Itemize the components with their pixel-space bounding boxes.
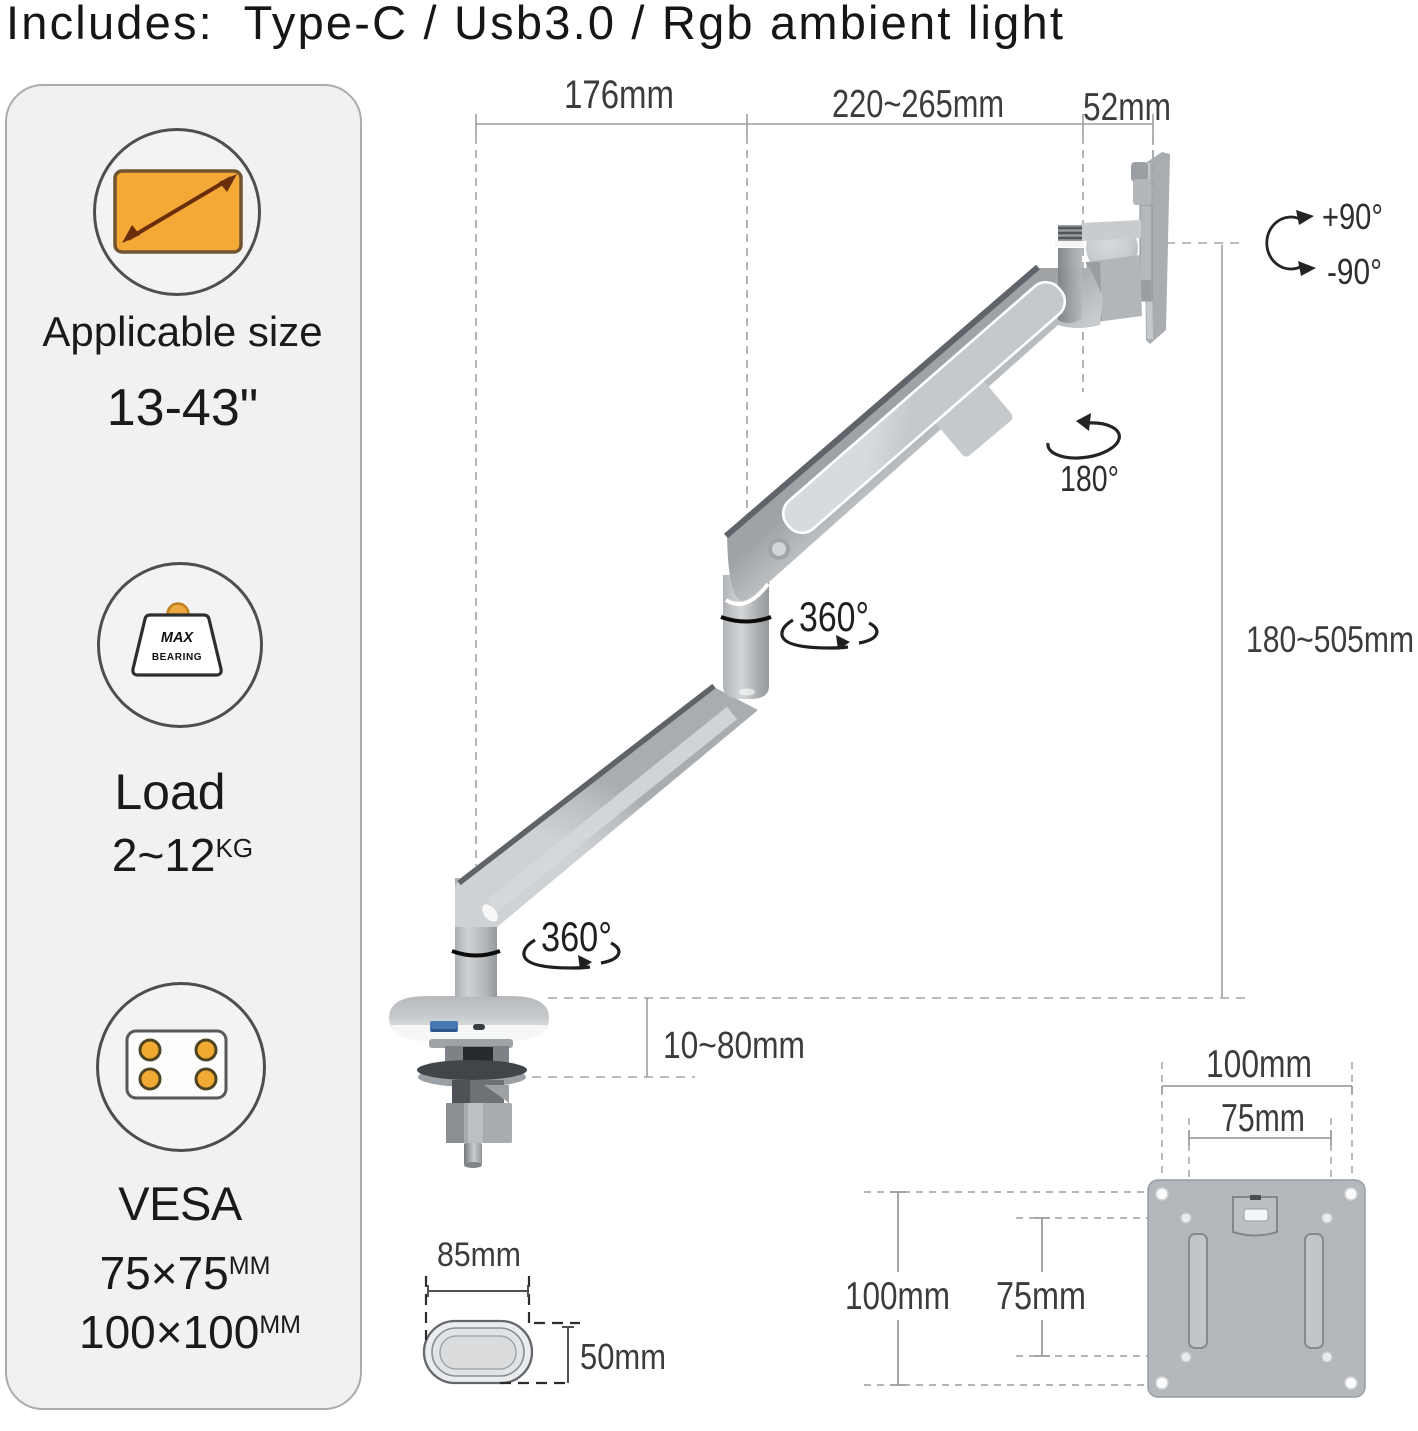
svg-text:100mm: 100mm xyxy=(1206,1043,1312,1086)
svg-text:52mm: 52mm xyxy=(1083,86,1171,129)
svg-text:10~80mm: 10~80mm xyxy=(663,1025,805,1067)
svg-text:360°: 360° xyxy=(541,913,612,960)
svg-text:180°: 180° xyxy=(1060,458,1119,499)
svg-text:180~505mm: 180~505mm xyxy=(1246,619,1414,660)
svg-text:220~265mm: 220~265mm xyxy=(832,83,1004,126)
svg-text:75mm: 75mm xyxy=(996,1275,1086,1318)
svg-text:100mm: 100mm xyxy=(845,1275,950,1318)
svg-text:+90°: +90° xyxy=(1322,196,1383,237)
svg-text:176mm: 176mm xyxy=(564,73,674,117)
svg-text:-90°: -90° xyxy=(1327,251,1382,292)
svg-text:50mm: 50mm xyxy=(580,1336,666,1377)
svg-text:360°: 360° xyxy=(799,593,869,640)
svg-text:85mm: 85mm xyxy=(437,1236,521,1274)
svg-text:75mm: 75mm xyxy=(1221,1097,1305,1140)
